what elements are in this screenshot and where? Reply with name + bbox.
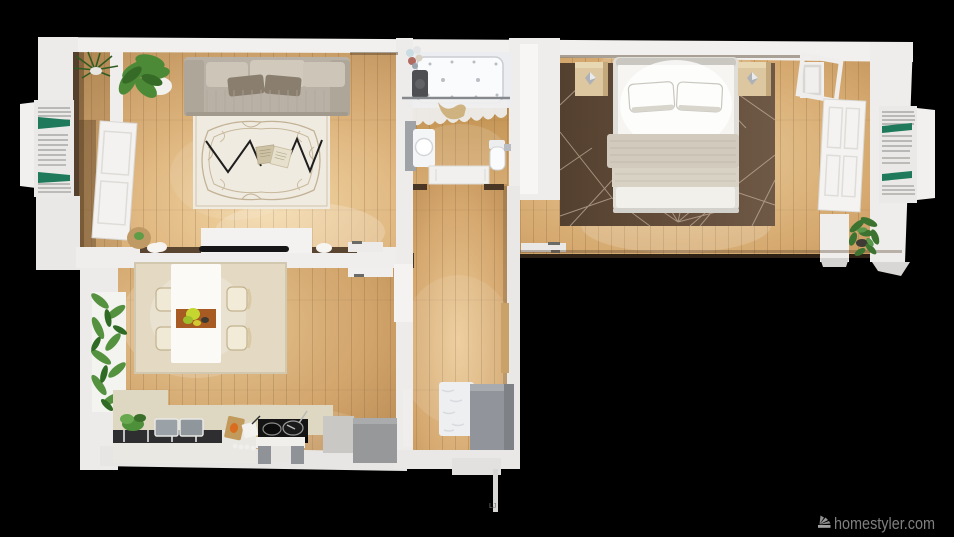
svg-text:homestyler.com: homestyler.com bbox=[834, 515, 935, 533]
svg-text:LJ: LJ bbox=[489, 503, 496, 510]
